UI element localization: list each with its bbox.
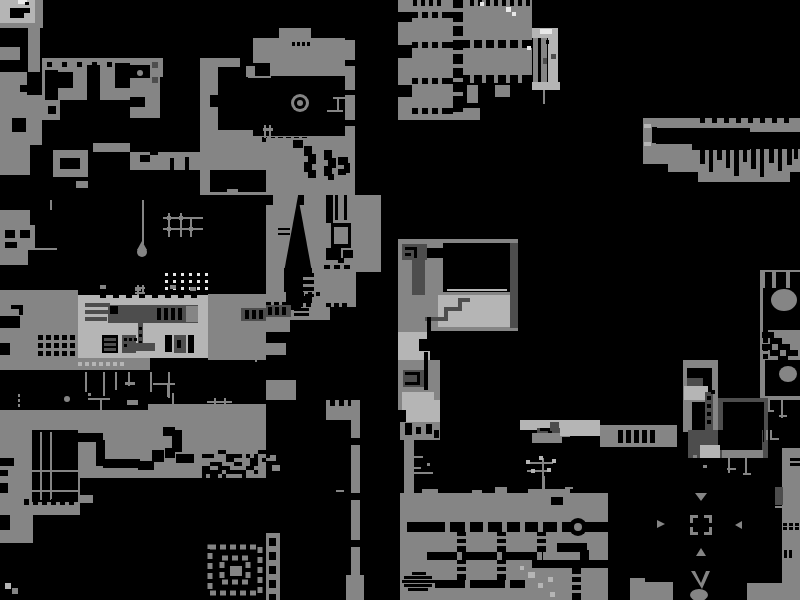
map-canvas (0, 0, 800, 600)
world-map (0, 0, 800, 600)
